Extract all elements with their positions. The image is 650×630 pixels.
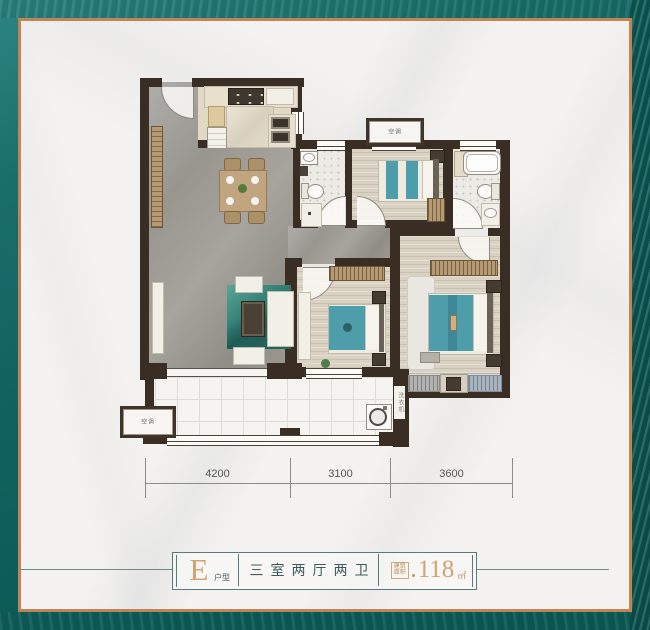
- kitchen-sink: [271, 117, 290, 129]
- dimension-label: 3600: [414, 468, 489, 480]
- bed-headboard: [433, 159, 439, 201]
- dimension-tick: [512, 458, 513, 498]
- nightstand: [372, 353, 386, 366]
- wall-segment: [345, 220, 357, 228]
- floor-plan-poster: 洗衣机 空调 空调 4200 3100 3600 E 户型 三室两厅两卫 建筑 …: [0, 0, 650, 630]
- bed-headboard: [487, 293, 493, 353]
- dresser-stool: [446, 377, 461, 391]
- plate: [225, 196, 235, 206]
- unit-type-label: 户型: [214, 572, 234, 582]
- cabinet-handle: [308, 212, 311, 215]
- armchair: [233, 347, 265, 365]
- marble-frame-right: [630, 0, 650, 630]
- dining-chair: [224, 211, 241, 224]
- wall-segment: [390, 228, 455, 236]
- bed-runner: [386, 161, 398, 199]
- toilet-tank: [491, 183, 500, 200]
- bay-cushion: [408, 375, 440, 392]
- marble-frame-bottom: [0, 612, 650, 630]
- desk: [298, 292, 311, 360]
- area-word-bottom: 面积: [394, 570, 406, 577]
- kitchen-sink: [271, 131, 290, 143]
- wall-segment: [267, 363, 302, 379]
- marble-frame-top: [0, 0, 650, 18]
- armchair: [235, 276, 263, 293]
- coffee-table: [241, 301, 265, 337]
- wardrobe: [329, 266, 385, 281]
- plate: [250, 175, 260, 185]
- window: [317, 140, 345, 151]
- balcony-floor: [155, 377, 395, 437]
- bedroom2-window: [306, 368, 362, 379]
- dimension-tick: [290, 458, 291, 498]
- bed-headboard: [379, 304, 384, 352]
- washer-knob: [383, 406, 387, 410]
- bed-pillows: [365, 306, 380, 350]
- nightstand: [372, 291, 386, 304]
- bench: [420, 352, 440, 363]
- kitchen-appliance: [266, 88, 294, 105]
- wall-segment: [488, 228, 510, 236]
- wardrobe: [430, 260, 498, 276]
- wall-segment: [293, 148, 300, 228]
- toilet: [307, 184, 324, 199]
- area-dot: [412, 574, 415, 577]
- dimension-line: [145, 483, 513, 484]
- balcony-glazing: [167, 435, 379, 446]
- sideboard: [151, 126, 163, 228]
- dimension-label: 3100: [303, 468, 378, 480]
- washer-drum: [369, 408, 387, 426]
- area-words: 建筑 面积: [391, 562, 409, 579]
- bed-tray: [450, 315, 457, 331]
- nightstand: [486, 280, 502, 293]
- legend-rule-right: [477, 569, 609, 570]
- legend-rule-left: [21, 569, 172, 570]
- wardrobe: [427, 198, 445, 222]
- legend-divider: [378, 554, 379, 586]
- dimension-tick: [390, 458, 391, 498]
- plate: [225, 175, 235, 185]
- nightstand: [486, 354, 502, 367]
- wall-segment: [390, 236, 400, 373]
- plate: [250, 196, 260, 206]
- balcony-sliding-door: [167, 368, 267, 377]
- ac-label: 空调: [388, 128, 402, 137]
- layout-description: 三室两厅两卫: [242, 552, 376, 588]
- dining-chair: [248, 211, 265, 224]
- wall-segment: [345, 148, 352, 228]
- stove: [228, 88, 264, 105]
- area-unit: ㎡: [457, 569, 466, 582]
- dimension-tick: [145, 458, 146, 498]
- table-plant: [238, 184, 247, 193]
- bed-pillows: [473, 295, 488, 351]
- ac-platform-top: 空调: [366, 118, 424, 146]
- bath-fixture: [300, 166, 308, 176]
- tv-cabinet: [152, 282, 164, 354]
- bathtub-inner: [466, 154, 498, 172]
- bed-cushion: [343, 323, 352, 332]
- bath-cabinet: [301, 203, 322, 227]
- bay-cushion: [468, 375, 502, 392]
- legend-divider: [238, 554, 239, 586]
- plant: [321, 359, 330, 368]
- window: [460, 140, 496, 151]
- ac-label: 空调: [141, 418, 155, 427]
- fridge: [207, 127, 227, 149]
- wall-segment: [140, 84, 149, 380]
- bed-runner: [406, 161, 418, 199]
- sink-basin: [484, 208, 497, 218]
- unit-letter: E: [184, 553, 214, 587]
- wall-segment: [362, 367, 397, 377]
- area-value: 118: [418, 556, 455, 584]
- washer-label: 洗衣机: [394, 386, 405, 419]
- dimension-label: 4200: [180, 468, 255, 480]
- kitchen-island: [226, 106, 274, 148]
- sink-basin: [303, 153, 315, 162]
- sofa: [267, 291, 294, 347]
- kitchen-cart: [208, 106, 225, 127]
- ac-platform-bottom: 空调: [120, 406, 176, 438]
- area-group: 建筑 面积 118 ㎡: [382, 552, 475, 588]
